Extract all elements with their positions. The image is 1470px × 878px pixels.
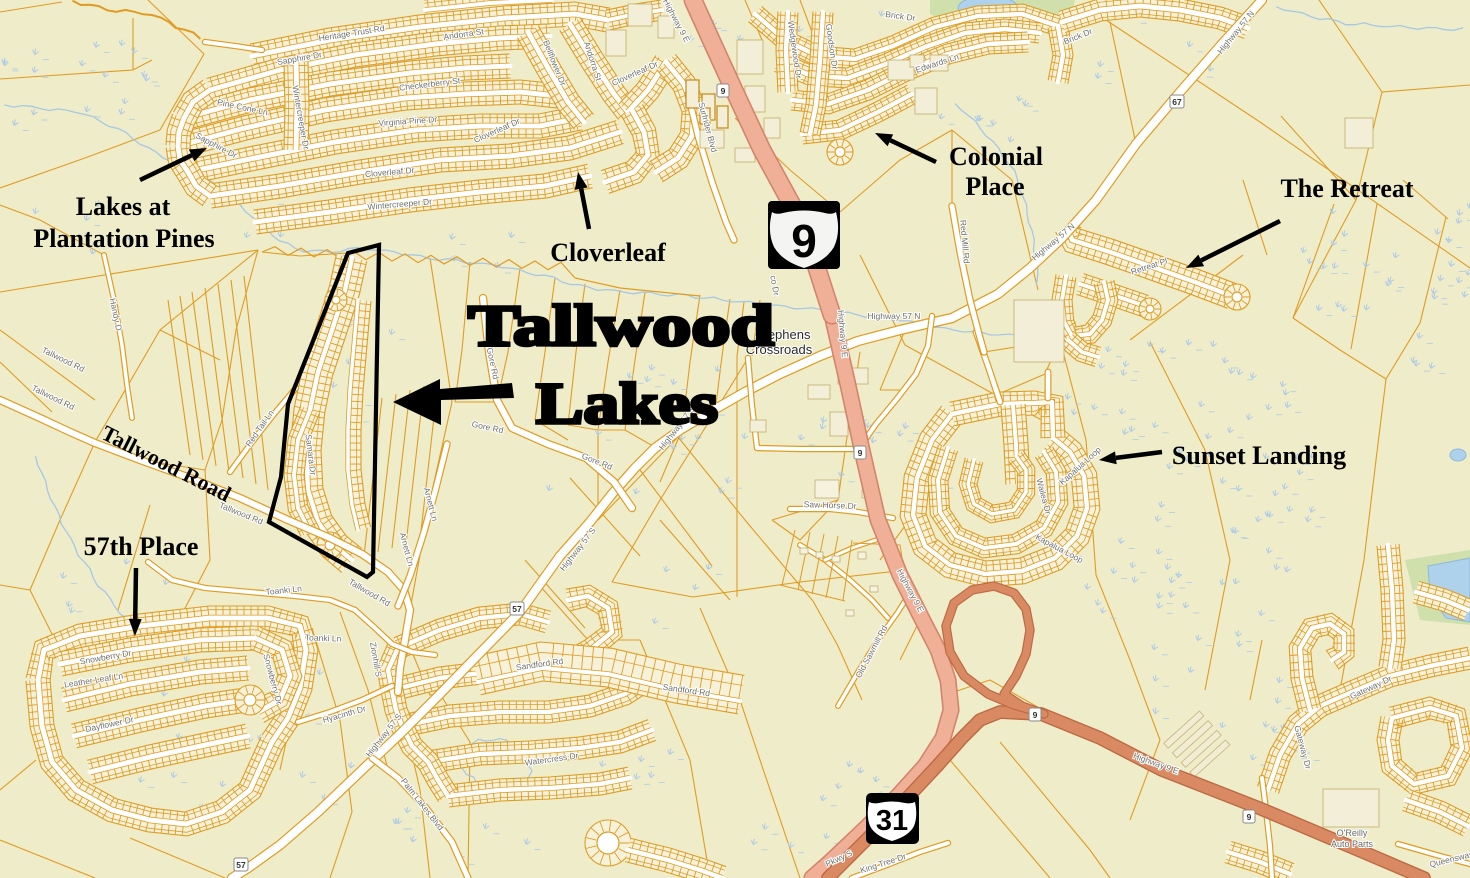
svg-text:67: 67 — [1172, 97, 1182, 107]
svg-text:Highway 57 N: Highway 57 N — [868, 311, 921, 321]
svg-text:Sunset Landing: Sunset Landing — [1172, 441, 1346, 470]
svg-text:Tallwood: Tallwood — [468, 293, 774, 358]
svg-text:Plantation Pines: Plantation Pines — [33, 224, 214, 253]
svg-text:Colonial: Colonial — [949, 142, 1043, 171]
svg-text:Lakes at: Lakes at — [76, 192, 171, 221]
svg-text:O'Reilly: O'Reilly — [1337, 828, 1368, 838]
svg-text:Cloverleaf: Cloverleaf — [550, 238, 666, 267]
svg-text:9: 9 — [858, 448, 863, 458]
svg-text:9: 9 — [791, 215, 817, 267]
svg-text:9: 9 — [1033, 710, 1038, 720]
svg-text:The Retreat: The Retreat — [1280, 174, 1413, 203]
svg-text:Place: Place — [965, 172, 1024, 201]
svg-text:Auto Parts: Auto Parts — [1331, 839, 1374, 849]
svg-text:57th Place: 57th Place — [84, 532, 199, 561]
svg-text:Lakes: Lakes — [536, 371, 718, 436]
svg-text:57: 57 — [512, 604, 522, 614]
svg-text:57: 57 — [236, 860, 246, 870]
svg-text:9: 9 — [721, 86, 726, 96]
svg-text:9: 9 — [1247, 812, 1252, 822]
svg-text:Saw Horse Dr: Saw Horse Dr — [803, 499, 856, 511]
svg-text:Toanki Ln: Toanki Ln — [305, 632, 342, 643]
svg-text:31: 31 — [876, 805, 908, 837]
